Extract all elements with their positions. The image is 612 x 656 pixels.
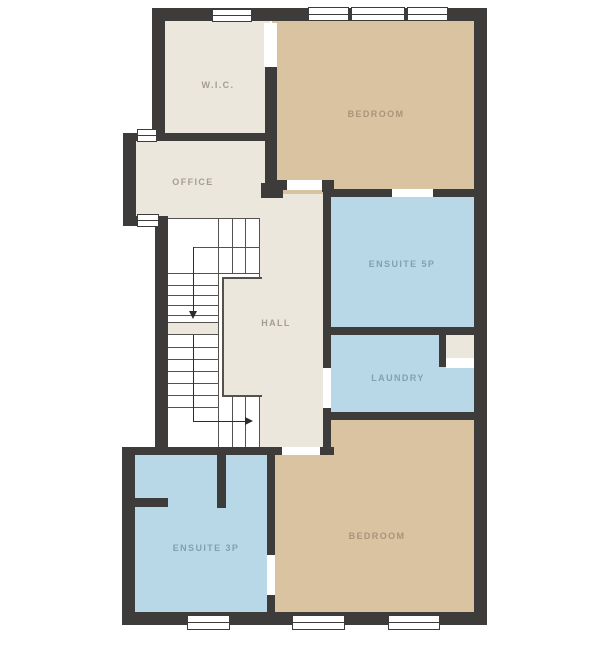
- room-bedroom-bottom-floor: [272, 452, 332, 616]
- stair-tread-line: [245, 218, 246, 273]
- wall-segment: [433, 189, 474, 197]
- stair-walk-line: [193, 247, 194, 312]
- wall-segment: [331, 412, 474, 420]
- wall-segment: [439, 335, 446, 367]
- room-label-bedroom-top: BEDROOM: [348, 109, 405, 119]
- door-opening: [446, 358, 474, 368]
- stair-walk-line: [193, 421, 247, 422]
- stair-walk-line: [193, 335, 194, 422]
- window: [292, 615, 345, 630]
- window-pane-line: [352, 14, 404, 15]
- wall-segment: [320, 447, 334, 455]
- wall-segment: [267, 447, 275, 555]
- door-opening: [264, 23, 277, 67]
- stair-tread-line: [232, 218, 233, 273]
- wall-segment: [267, 595, 275, 612]
- wall-segment: [122, 447, 282, 455]
- window-pane-line: [213, 15, 251, 16]
- floor-plan: W.I.C.OFFICEBEDROOMENSUITE 5PHALLLAUNDRY…: [0, 0, 612, 656]
- stair-tread-line: [222, 395, 262, 397]
- window-pane-line: [138, 135, 156, 136]
- room-wic-floor: [158, 18, 270, 138]
- wall-segment: [331, 327, 474, 335]
- wall-segment: [155, 216, 168, 448]
- window: [137, 214, 159, 227]
- wall-segment: [327, 189, 392, 197]
- door-opening: [323, 368, 331, 408]
- wall-segment: [474, 8, 487, 625]
- wall-segment: [123, 133, 136, 226]
- window: [351, 7, 405, 21]
- door-opening: [282, 447, 320, 455]
- window: [137, 129, 157, 142]
- window: [407, 7, 448, 21]
- stair-tread-line: [259, 218, 260, 277]
- door-opening: [392, 189, 433, 197]
- stair-tread-line: [218, 218, 219, 448]
- room-label-wic: W.I.C.: [202, 80, 235, 90]
- wall-segment: [323, 189, 331, 368]
- wall-segment: [261, 183, 283, 198]
- room-label-ensuite-5p: ENSUITE 5P: [369, 259, 436, 269]
- window-pane-line: [309, 14, 348, 15]
- window-pane-line: [188, 622, 229, 623]
- stair-tread-line: [259, 397, 260, 448]
- stair-right-arrow-icon: [245, 417, 253, 425]
- window-pane-line: [408, 14, 447, 15]
- door-opening: [287, 180, 322, 190]
- wall-segment: [122, 447, 135, 625]
- stair-tread-line: [222, 277, 262, 279]
- room-label-hall: HALL: [261, 318, 291, 328]
- room-label-ensuite-3p: ENSUITE 3P: [173, 543, 240, 553]
- window: [388, 615, 440, 630]
- wall-segment: [152, 8, 165, 141]
- wall-segment: [217, 455, 226, 508]
- laundry-closet-floor: [446, 335, 474, 358]
- stair-tread-line: [193, 247, 259, 248]
- window: [308, 7, 349, 21]
- window-pane-line: [389, 622, 439, 623]
- window-pane-line: [138, 220, 158, 221]
- room-label-bedroom-bottom: BEDROOM: [349, 531, 406, 541]
- window: [187, 615, 230, 630]
- stair-tread-line: [168, 273, 259, 274]
- room-label-laundry: LAUNDRY: [371, 373, 424, 383]
- window-pane-line: [293, 622, 344, 623]
- room-bedroom-bottom-floor: [328, 416, 478, 616]
- hall-notch-floor: [222, 277, 260, 397]
- wall-segment: [265, 64, 277, 190]
- wall-segment: [130, 498, 168, 507]
- room-label-office: OFFICE: [172, 177, 213, 187]
- stair-tread-line: [168, 322, 218, 323]
- room-bedroom-top-floor: [272, 18, 478, 194]
- stair-tread-line: [168, 218, 260, 219]
- stair-tread-line: [232, 397, 233, 448]
- window: [212, 9, 252, 22]
- stair-tread-line: [222, 277, 224, 397]
- room-ensuite-3p-floor: [130, 452, 272, 616]
- door-opening: [267, 555, 275, 595]
- stair-down-arrow-icon: [189, 311, 197, 319]
